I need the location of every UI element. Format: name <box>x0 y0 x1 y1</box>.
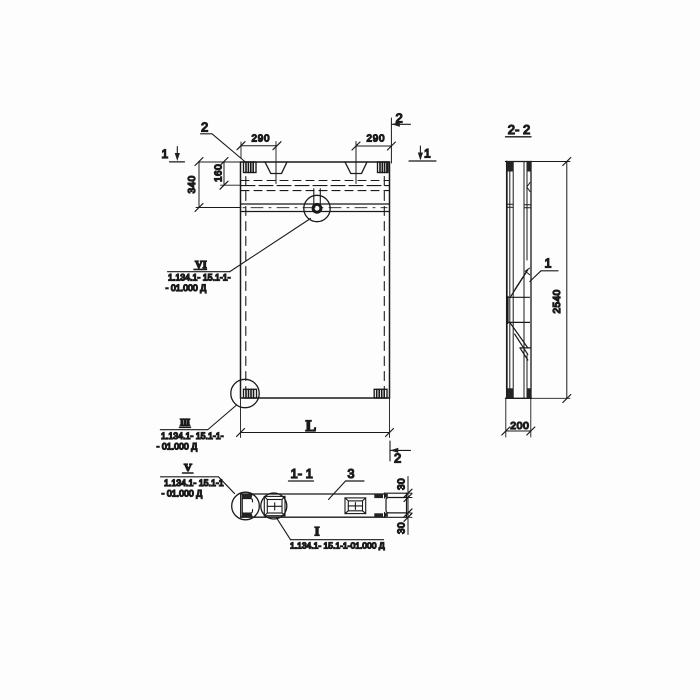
svg-text:- 01.000 Д: - 01.000 Д <box>166 283 207 293</box>
svg-text:1: 1 <box>545 257 552 271</box>
svg-text:1.134.1- 15.1-1: 1.134.1- 15.1-1 <box>164 478 224 488</box>
svg-text:1.134.1- 15.1-1-: 1.134.1- 15.1-1- <box>161 431 224 441</box>
svg-text:1.134.1- 15.1-1-: 1.134.1- 15.1-1- <box>168 273 231 283</box>
svg-text:- 01.000 Д: - 01.000 Д <box>157 442 198 452</box>
svg-text:1: 1 <box>162 147 169 161</box>
svg-text:290: 290 <box>252 134 271 145</box>
svg-text:1.134.1- 15.1-1-01.000 Д: 1.134.1- 15.1-1-01.000 Д <box>290 541 385 551</box>
svg-text:1: 1 <box>424 147 431 161</box>
svg-text:340: 340 <box>187 175 198 193</box>
svg-text:160: 160 <box>214 164 225 182</box>
svg-text:30: 30 <box>396 522 407 534</box>
svg-text:2: 2 <box>201 120 208 135</box>
svg-text:30: 30 <box>396 478 407 490</box>
svg-text:2540: 2540 <box>552 289 563 313</box>
svg-text:3: 3 <box>348 467 355 481</box>
svg-text:- 01.000 Д: - 01.000 Д <box>162 489 203 499</box>
svg-text:290: 290 <box>367 134 386 145</box>
svg-text:I: I <box>315 524 320 539</box>
svg-text:2- 2: 2- 2 <box>508 122 530 137</box>
svg-text:1- 1: 1- 1 <box>291 466 313 481</box>
svg-text:200: 200 <box>510 420 529 432</box>
